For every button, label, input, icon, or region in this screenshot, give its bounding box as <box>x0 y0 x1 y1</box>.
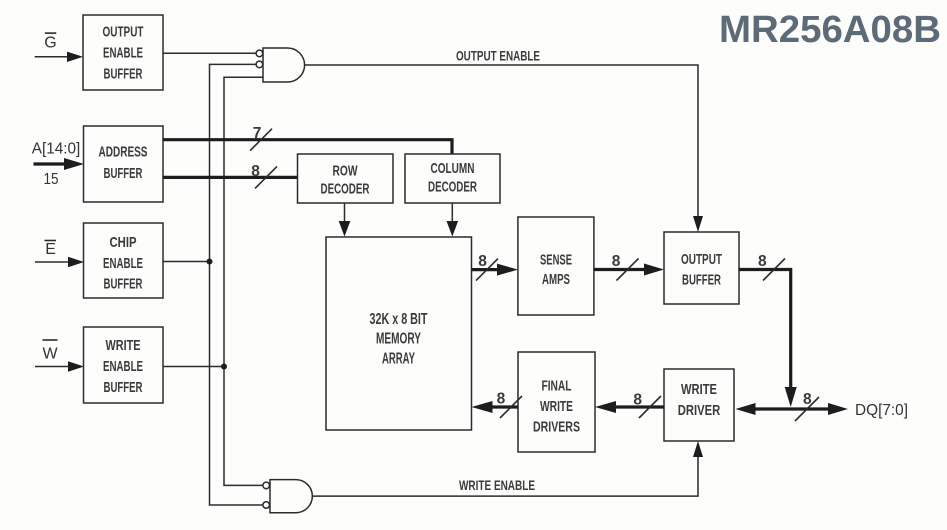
svg-text:WRITE ENABLE: WRITE ENABLE <box>459 477 535 493</box>
svg-text:WRITE: WRITE <box>106 337 141 354</box>
svg-text:WRITE: WRITE <box>540 398 573 415</box>
svg-text:FINAL: FINAL <box>542 378 572 395</box>
svg-text:8: 8 <box>478 253 487 270</box>
svg-text:8: 8 <box>497 391 506 408</box>
svg-text:ARRAY: ARRAY <box>382 350 415 367</box>
svg-text:ENABLE: ENABLE <box>103 358 143 375</box>
svg-text:BUFFER: BUFFER <box>104 165 143 182</box>
svg-text:COLUMN: COLUMN <box>431 160 475 177</box>
svg-text:OUTPUT: OUTPUT <box>681 251 722 268</box>
svg-text:BUFFER: BUFFER <box>682 272 721 289</box>
svg-text:BUFFER: BUFFER <box>104 379 143 396</box>
svg-text:MEMORY: MEMORY <box>376 331 421 348</box>
svg-text:G: G <box>44 35 56 52</box>
svg-text:BUFFER: BUFFER <box>104 66 143 83</box>
svg-text:AMPS: AMPS <box>542 271 570 288</box>
svg-text:BUFFER: BUFFER <box>104 276 143 293</box>
svg-text:WRITE: WRITE <box>681 381 717 398</box>
svg-text:MR256A08B: MR256A08B <box>719 9 941 51</box>
svg-text:A[14:0]: A[14:0] <box>32 141 81 158</box>
svg-text:15: 15 <box>44 171 59 188</box>
svg-text:CHIP: CHIP <box>110 234 137 251</box>
svg-text:E: E <box>45 241 56 258</box>
svg-text:8: 8 <box>251 163 260 180</box>
svg-text:ENABLE: ENABLE <box>103 45 143 62</box>
svg-text:8: 8 <box>633 392 642 409</box>
svg-text:32K x 8 BIT: 32K x 8 BIT <box>370 311 428 328</box>
svg-text:DRIVER: DRIVER <box>678 402 721 419</box>
svg-text:8: 8 <box>612 253 621 270</box>
svg-text:DECODER: DECODER <box>428 179 477 196</box>
svg-text:DECODER: DECODER <box>321 181 370 198</box>
svg-text:OUTPUT ENABLE: OUTPUT ENABLE <box>456 48 540 64</box>
svg-text:OUTPUT: OUTPUT <box>103 24 144 41</box>
svg-text:8: 8 <box>758 253 767 270</box>
svg-text:ENABLE: ENABLE <box>103 255 143 272</box>
svg-text:SENSE: SENSE <box>540 252 572 269</box>
svg-text:DQ[7:0]: DQ[7:0] <box>855 402 908 419</box>
svg-text:DRIVERS: DRIVERS <box>533 419 580 436</box>
svg-text:W: W <box>43 346 59 363</box>
svg-text:ADDRESS: ADDRESS <box>99 144 148 161</box>
svg-text:7: 7 <box>253 125 262 142</box>
svg-text:ROW: ROW <box>333 163 359 180</box>
